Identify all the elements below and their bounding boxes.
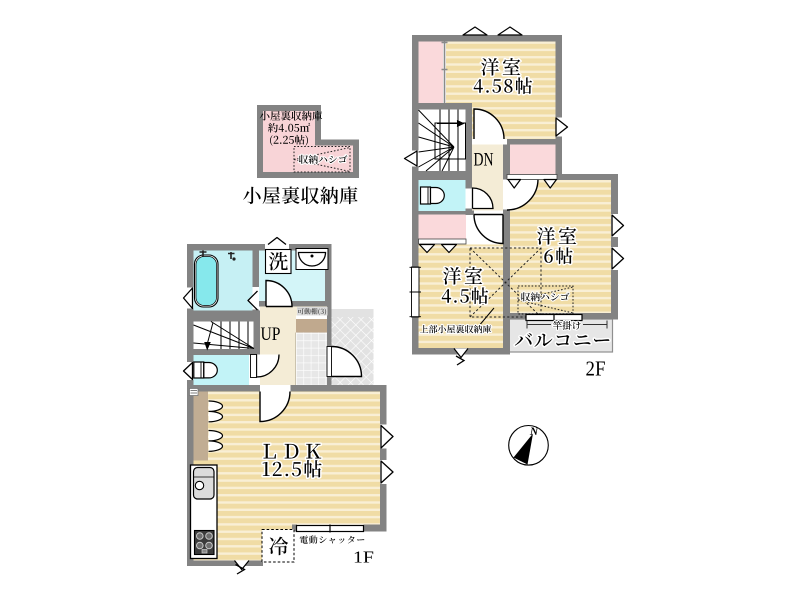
svg-text:1F: 1F <box>353 547 374 566</box>
svg-text:DN: DN <box>474 150 494 171</box>
svg-text:N: N <box>529 426 539 438</box>
svg-text:UP: UP <box>261 324 281 345</box>
svg-text:2F: 2F <box>586 356 606 380</box>
